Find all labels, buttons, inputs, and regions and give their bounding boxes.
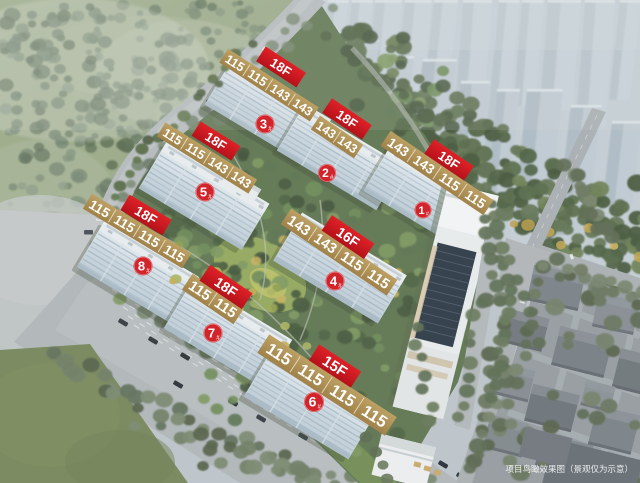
- svg-text:项目鸟瞰效果图（景观仅为示意）: 项目鸟瞰效果图（景观仅为示意）: [505, 464, 633, 474]
- svg-text:5: 5: [200, 184, 207, 199]
- svg-text:#: #: [426, 212, 429, 218]
- svg-text:2: 2: [322, 166, 329, 180]
- svg-text:7: 7: [208, 325, 215, 340]
- svg-text:4: 4: [330, 273, 338, 288]
- svg-text:6: 6: [309, 394, 317, 410]
- svg-text:1: 1: [418, 205, 424, 217]
- svg-text:8: 8: [138, 258, 145, 273]
- svg-text:3: 3: [260, 116, 267, 131]
